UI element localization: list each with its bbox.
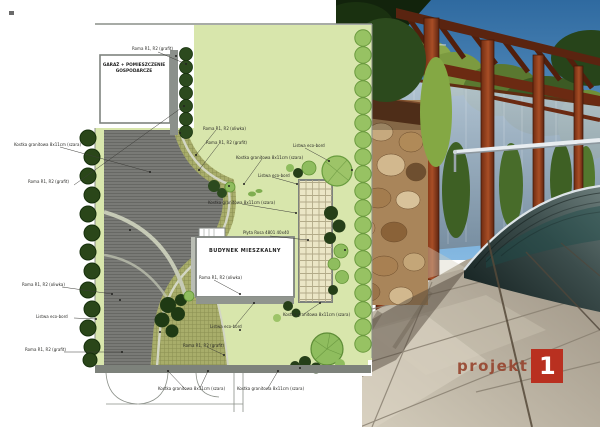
brand-logo-text: projekt	[457, 357, 528, 375]
page: { "plan": { "garage_label": "GARAŻ + POM…	[0, 0, 600, 427]
plan-label: Kostka granitowa 8x11cm (szara)	[158, 387, 225, 391]
plan-label: Kostka granitowa 8x11cm (szara)	[208, 201, 275, 205]
building-label: BUDYNEK MIESZKALNY	[196, 248, 294, 254]
plan-label: Roma R1, R2 (oliwka)	[203, 127, 246, 131]
plan-label: Roma R1, R2 (oliwka)	[199, 276, 242, 280]
right-tree-row	[355, 30, 371, 352]
plan-label: Roma R1, R2 (grafit)	[206, 141, 247, 145]
garage-label: GARAŻ + POMIESZCZENIE GOSPODARCZE	[101, 63, 167, 76]
perimeter-wall	[95, 365, 371, 373]
lime-conifer	[420, 57, 452, 167]
plan-label: Płyta Rosa 4801 40x40	[243, 231, 289, 235]
plan-label: Roma R1, R2 (grafit)	[132, 47, 173, 51]
brand-logo: projekt 1	[457, 349, 563, 383]
plan-label: Kostka granitowa 8x11cm (szara)	[14, 143, 81, 147]
plan-label: Roma R1, R2 (oliwka)	[22, 283, 65, 287]
plan-label: Listwa eco-bord	[36, 315, 68, 319]
plan-label: Roma R1, R2 (grafit)	[183, 344, 224, 348]
plan-label: Listwa eco-bord	[258, 174, 290, 178]
garden-plan	[0, 0, 380, 427]
house-building	[191, 228, 294, 304]
plan-label: Kostka granitowa 8x11cm (szara)	[236, 156, 303, 160]
plan-label: Listwa eco-bord	[293, 144, 325, 148]
plan-label: Kostka granitowa 8x11cm (szara)	[283, 313, 350, 317]
plan-label: Roma R1, R2 (grafit)	[25, 348, 66, 352]
brand-logo-number-badge: 1	[531, 349, 563, 383]
plan-label: Kostka granitowa 8x11cm (szara)	[237, 387, 304, 391]
plan-label: Listwa eco-bord	[210, 325, 242, 329]
plan-label: Roma R1, R2 (grafit)	[28, 180, 69, 184]
